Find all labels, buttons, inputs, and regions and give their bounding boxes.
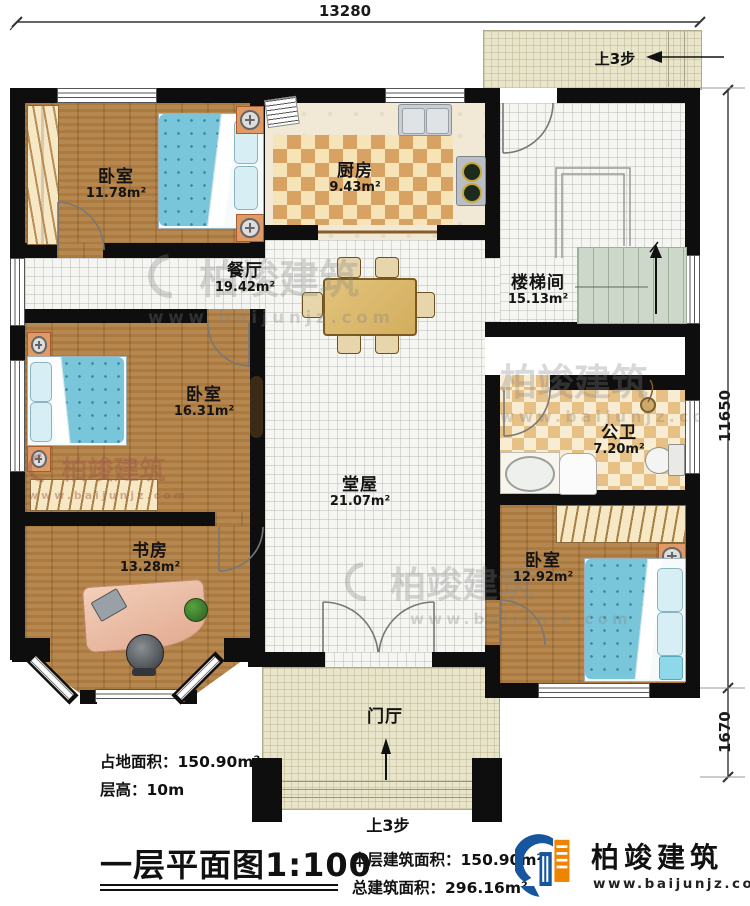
- room-area: 15.13m²: [488, 293, 588, 308]
- sink-bowl: [402, 108, 425, 134]
- floor-height-text: 层高：10m: [100, 778, 184, 800]
- room-name: 楼梯间: [488, 274, 588, 293]
- plan-title: 一层平面图1:100: [100, 840, 372, 886]
- wall-bathroom-left-lower: [485, 645, 500, 683]
- title-underline: [100, 884, 338, 886]
- wall-stair-left: [485, 103, 500, 258]
- dining-chair: [337, 257, 361, 278]
- foyer-step-line: [263, 781, 499, 782]
- hall-door-patch: [325, 652, 432, 667]
- nightstand: [236, 214, 264, 242]
- stove: [456, 156, 486, 206]
- bay-corner-right: [224, 638, 260, 662]
- bathroom-sink: [505, 456, 555, 492]
- wall-bathroom-top: [550, 375, 685, 390]
- kitchen-window: [385, 88, 465, 103]
- room-label-bedroom2: 卧室 16.31m²: [154, 386, 254, 420]
- room-area: 11.78m²: [66, 187, 166, 202]
- stairs: [577, 247, 687, 324]
- brand-logo: 柏竣建筑 www.baijunjz.com: [515, 834, 745, 902]
- bedroom3-window: [538, 683, 650, 698]
- office-chair: [126, 634, 164, 672]
- room-area: 9.43m²: [305, 181, 405, 196]
- bedroom2-door-patch: [207, 309, 250, 323]
- wall-right: [685, 103, 700, 683]
- bedroom1-window: [57, 88, 157, 103]
- bed-blanket: [60, 357, 124, 443]
- pillow: [657, 568, 683, 612]
- dining-table: [323, 278, 417, 336]
- dimension-top: 13280: [315, 2, 375, 20]
- room-area: 21.07m²: [310, 495, 410, 510]
- dimension-right-upper: 11650: [716, 388, 734, 444]
- foyer-step-line: [263, 789, 499, 790]
- pillow: [234, 166, 258, 210]
- toilet-tank: [668, 444, 685, 476]
- foyer-floor: [262, 667, 500, 810]
- wall-stair-bottom: [485, 322, 700, 337]
- brand-url: www.baijunjz.com: [593, 876, 750, 892]
- bay-window: [95, 689, 185, 702]
- nightstand: [236, 106, 264, 134]
- porch-steps-label: 上3步: [584, 48, 646, 69]
- brand-name: 柏竣建筑: [591, 836, 723, 876]
- room-label-hall: 堂屋 21.07m²: [310, 476, 410, 510]
- shower-head: [640, 397, 656, 413]
- room-label-kitchen: 厨房 9.43m²: [305, 162, 405, 196]
- room-area: 19.42m²: [195, 281, 295, 296]
- room-area: 12.92m²: [493, 571, 593, 586]
- bench: [30, 479, 158, 511]
- bathroom-window: [685, 400, 700, 474]
- land-area-text: 占地面积：150.90m²: [100, 750, 260, 772]
- dining-chair: [337, 333, 361, 354]
- bay-corner-left: [12, 638, 50, 662]
- kitchen-corner-window: [264, 96, 300, 128]
- wall-bedroom1-bottom-b: [103, 243, 265, 258]
- title-underline: [100, 889, 338, 891]
- wardrobe: [556, 505, 686, 543]
- nightstand: [27, 332, 51, 358]
- room-name: 门厅: [345, 708, 425, 727]
- room-label-stairwell: 楼梯间 15.13m²: [488, 274, 588, 308]
- room-label-dining: 餐厅 19.42m²: [195, 262, 295, 296]
- bathroom-door-patch: [500, 375, 550, 390]
- washing-machine: [559, 453, 597, 495]
- brand-logo-icon: [515, 834, 583, 900]
- stairwell-door-opening: [500, 88, 557, 103]
- entry-steps-label: 上3步: [348, 812, 428, 836]
- foyer-step-line: [263, 797, 499, 798]
- study-door-patch: [215, 512, 250, 526]
- room-area: 7.20m²: [569, 443, 669, 458]
- room-name: 卧室: [154, 386, 254, 405]
- pillow: [657, 612, 683, 656]
- plan-title-text: 一层平面图: [100, 846, 265, 884]
- floor-plan: 柏竣建筑 www.baijunjz.com 柏竣建筑 www.baijunjz.…: [0, 0, 750, 906]
- porch-step-line: [668, 31, 669, 87]
- wall-kitchen-bottom-a: [265, 225, 318, 240]
- pillar-right: [472, 758, 502, 822]
- room-label-study: 书房 13.28m²: [100, 542, 200, 576]
- kitchen-door-patch: [318, 225, 437, 240]
- room-area: 16.31m²: [154, 405, 254, 420]
- burner: [462, 162, 482, 182]
- room-name: 公卫: [569, 424, 669, 443]
- room-name: 餐厅: [195, 262, 295, 281]
- wardrobe: [27, 105, 59, 245]
- bed-stool: [659, 656, 683, 680]
- dimension-right-lower: 1670: [716, 713, 734, 753]
- burner: [462, 183, 482, 203]
- dining-chair: [375, 257, 399, 278]
- dining-chair: [302, 292, 323, 318]
- bedroom2-window: [10, 360, 25, 472]
- wall-bedroom2-bottom: [25, 512, 215, 526]
- room-name: 卧室: [493, 552, 593, 571]
- office-chair-back: [132, 668, 156, 676]
- bedroom3-door-patch: [485, 600, 500, 645]
- stairwell-window: [685, 255, 700, 324]
- room-label-bedroom3: 卧室 12.92m²: [493, 552, 593, 586]
- room-label-foyer: 门厅: [345, 708, 425, 727]
- pillow: [30, 362, 52, 402]
- dining-chair: [414, 292, 435, 318]
- room-label-bedroom1: 卧室 11.78m²: [66, 168, 166, 202]
- sink-bowl: [426, 108, 449, 134]
- room-label-bathroom: 公卫 7.20m²: [569, 424, 669, 458]
- wall-dining-bedroom2-a: [25, 309, 207, 323]
- dining-chair: [375, 333, 399, 354]
- total-area-text: 总建筑面积：296.16m²: [352, 876, 528, 898]
- pillow: [30, 402, 52, 442]
- kitchen-sink: [398, 104, 452, 136]
- room-name: 卧室: [66, 168, 166, 187]
- room-name: 书房: [100, 542, 200, 561]
- dining-window: [10, 258, 25, 326]
- room-name: 堂屋: [310, 476, 410, 495]
- porch-step-line: [684, 31, 685, 87]
- bedroom1-door-patch: [57, 243, 103, 258]
- plant: [184, 598, 208, 622]
- room-name: 厨房: [305, 162, 405, 181]
- wall-bedroom1-bottom-a: [25, 243, 57, 258]
- nightstand: [27, 446, 51, 472]
- room-area: 13.28m²: [100, 561, 200, 576]
